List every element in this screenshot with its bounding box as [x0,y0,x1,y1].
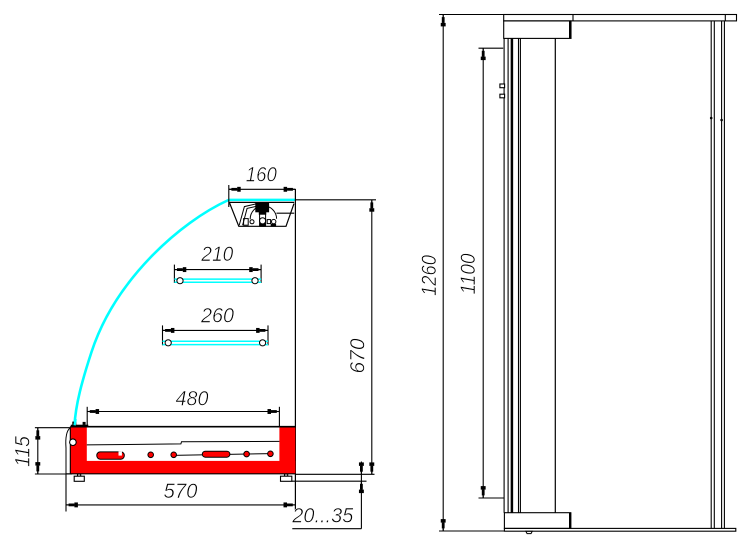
svg-text:480: 480 [176,388,209,411]
svg-text:570: 570 [164,480,198,503]
svg-text:1100: 1100 [457,253,480,294]
svg-text:20...35: 20...35 [291,504,353,527]
svg-text:115: 115 [12,436,35,467]
svg-text:1260: 1260 [418,255,441,296]
svg-text:160: 160 [246,164,277,187]
svg-text:210: 210 [200,243,233,266]
svg-text:670: 670 [347,338,370,373]
svg-text:260: 260 [200,304,234,327]
